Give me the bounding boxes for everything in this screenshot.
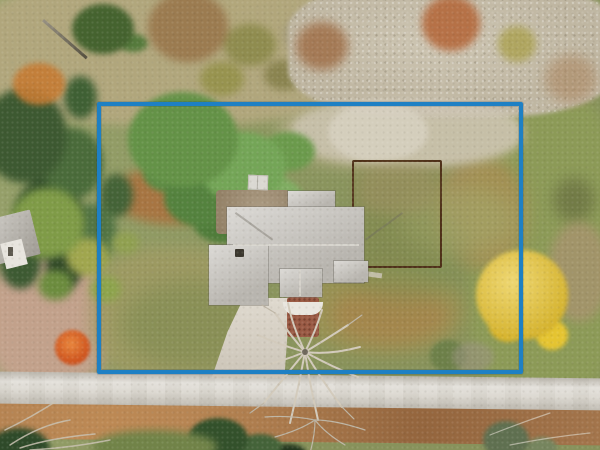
conifer-tree: [72, 4, 134, 54]
neighbor-house-window: [8, 247, 13, 256]
property-boundary-overlay: [97, 102, 523, 374]
aerial-photo: [0, 0, 600, 450]
orange-foliage-patch: [13, 63, 65, 105]
rust-foliage: [296, 22, 348, 70]
rust-foliage: [545, 55, 597, 103]
red-autumn-shrub: [55, 330, 90, 365]
bare-branches: [480, 405, 600, 450]
yellow-green-foliage: [498, 26, 536, 62]
bare-branches: [0, 390, 140, 450]
dark-ground-spot: [553, 178, 595, 222]
